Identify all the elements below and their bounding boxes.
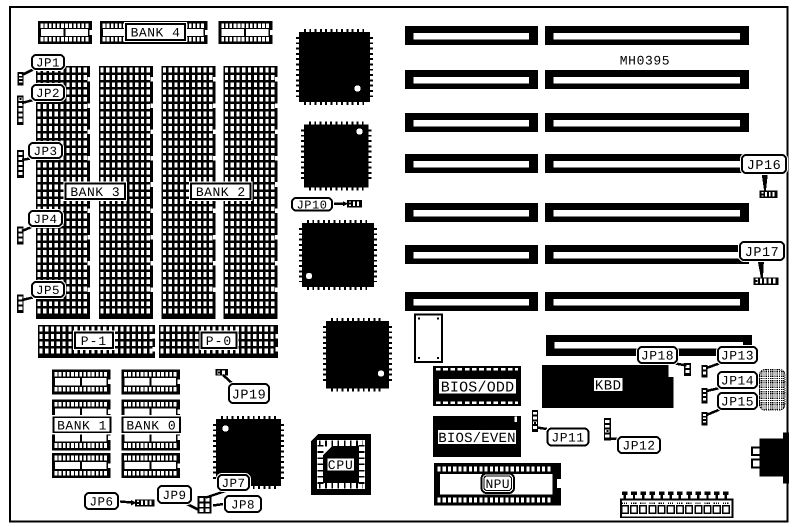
svg-text:JP11: JP11 (551, 431, 584, 446)
svg-text:JP2: JP2 (36, 87, 60, 101)
svg-text:BANK 4: BANK 4 (131, 26, 181, 41)
svg-text:BIOS/ODD: BIOS/ODD (441, 380, 515, 397)
svg-text:JP4: JP4 (33, 213, 57, 227)
svg-text:BANK 2: BANK 2 (196, 185, 246, 200)
svg-text:BANK 0: BANK 0 (126, 418, 176, 433)
svg-text:JP19: JP19 (232, 388, 266, 403)
svg-text:JP3: JP3 (33, 145, 57, 159)
svg-text:MH0395: MH0395 (620, 54, 670, 69)
svg-text:P-0: P-0 (206, 334, 232, 349)
svg-text:JP6: JP6 (89, 495, 113, 509)
svg-text:JP17: JP17 (745, 246, 779, 261)
svg-text:JP12: JP12 (622, 439, 655, 454)
svg-text:JP9: JP9 (162, 489, 186, 503)
svg-text:JP1: JP1 (36, 56, 60, 70)
svg-text:P-1: P-1 (81, 334, 107, 349)
svg-text:BANK 3: BANK 3 (70, 185, 120, 200)
svg-text:KBD: KBD (595, 378, 622, 394)
svg-text:JP15: JP15 (721, 395, 754, 410)
svg-text:JP8: JP8 (231, 498, 255, 512)
svg-text:CPU: CPU (328, 458, 354, 473)
svg-text:NPU: NPU (486, 477, 510, 492)
svg-text:JP10: JP10 (297, 199, 328, 213)
svg-text:JP16: JP16 (747, 159, 781, 174)
svg-text:BANK 1: BANK 1 (57, 418, 107, 433)
svg-text:JP7: JP7 (221, 477, 245, 491)
svg-text:BIOS/EVEN: BIOS/EVEN (438, 431, 515, 447)
svg-text:JP18: JP18 (641, 349, 674, 364)
svg-text:JP13: JP13 (721, 349, 754, 364)
svg-text:JP5: JP5 (36, 284, 60, 298)
svg-text:JP14: JP14 (721, 374, 754, 389)
